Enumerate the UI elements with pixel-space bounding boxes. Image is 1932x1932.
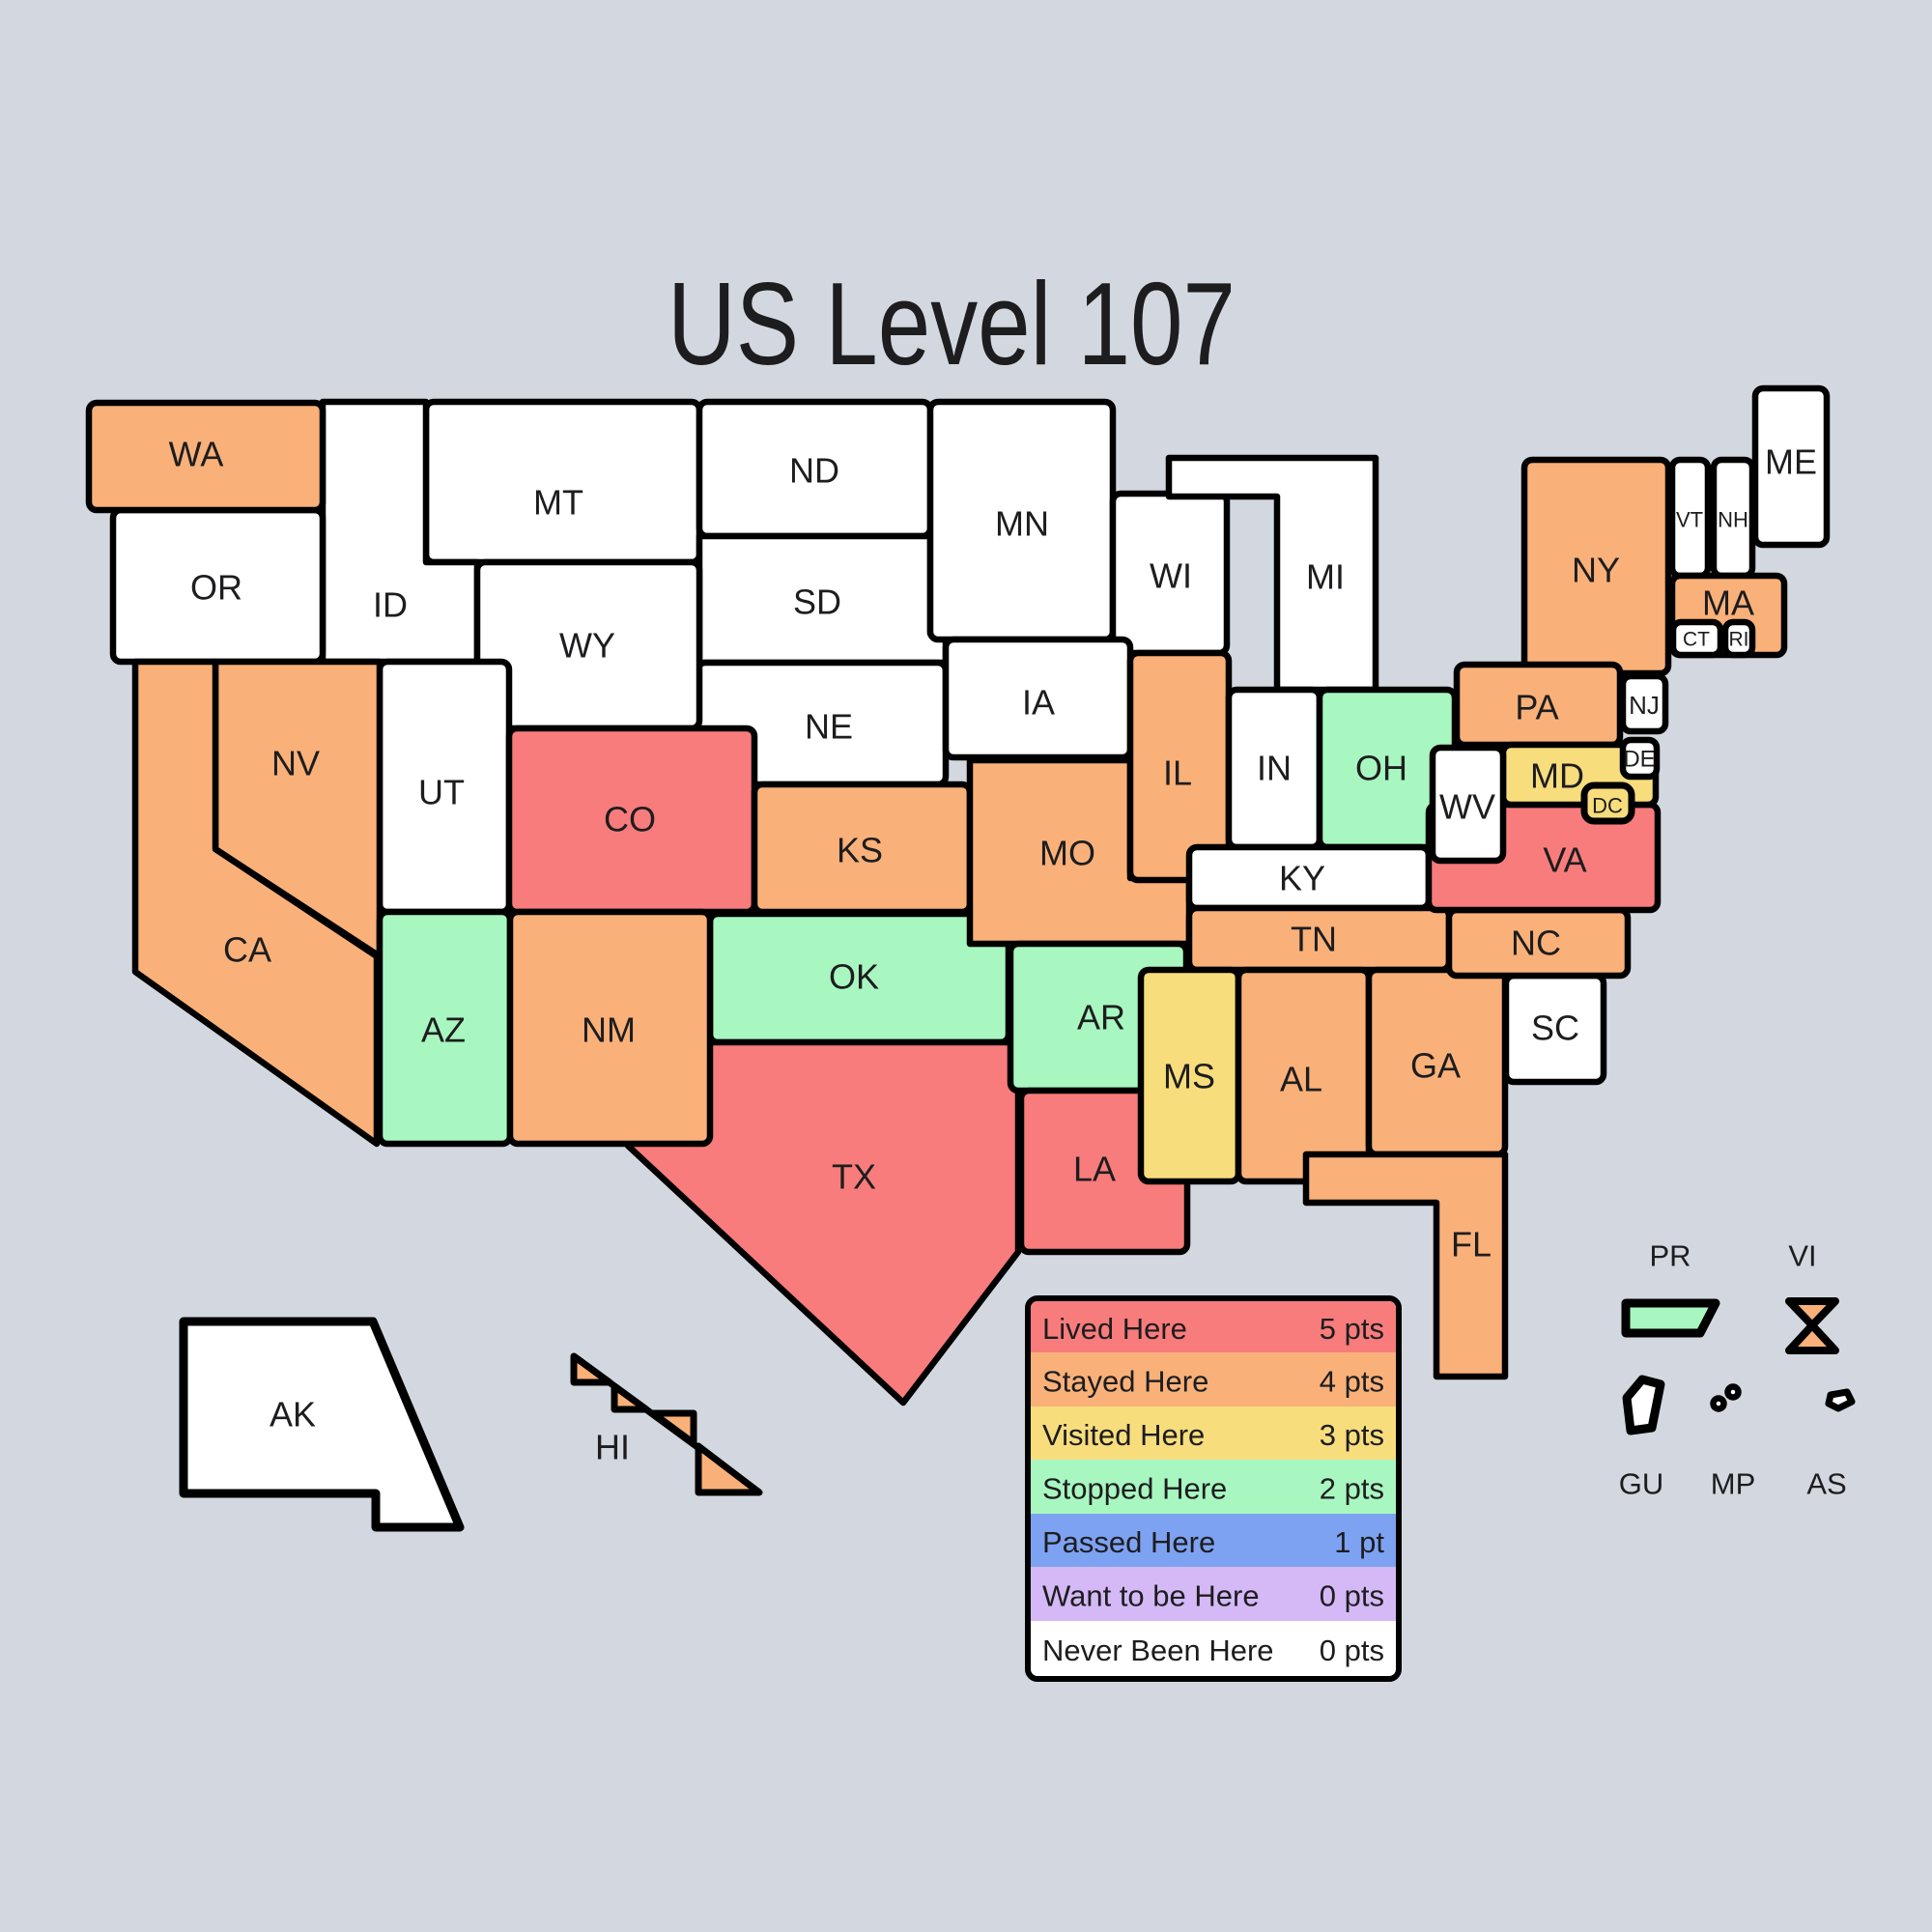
svg-text:LA: LA xyxy=(1073,1150,1116,1189)
svg-text:0 pts: 0 pts xyxy=(1320,1579,1384,1613)
svg-text:Want to be Here: Want to be Here xyxy=(1042,1579,1260,1613)
svg-text:Passed Here: Passed Here xyxy=(1042,1525,1215,1559)
svg-text:WA: WA xyxy=(169,435,224,474)
svg-text:Stayed Here: Stayed Here xyxy=(1042,1365,1208,1399)
svg-text:NH: NH xyxy=(1718,508,1748,532)
svg-text:CA: CA xyxy=(223,930,271,970)
svg-text:IN: IN xyxy=(1257,749,1292,788)
svg-text:Lived Here: Lived Here xyxy=(1042,1312,1187,1346)
svg-text:KY: KY xyxy=(1279,859,1325,898)
svg-text:NE: NE xyxy=(805,707,853,747)
svg-text:AS: AS xyxy=(1806,1467,1846,1501)
svg-text:CO: CO xyxy=(604,800,656,839)
svg-text:3 pts: 3 pts xyxy=(1320,1418,1384,1452)
svg-text:PR: PR xyxy=(1649,1239,1690,1273)
svg-text:GU: GU xyxy=(1619,1467,1664,1501)
svg-text:GA: GA xyxy=(1410,1046,1461,1086)
svg-text:HI: HI xyxy=(595,1428,630,1467)
svg-text:PA: PA xyxy=(1515,688,1558,727)
svg-text:MA: MA xyxy=(1702,583,1754,623)
svg-text:RI: RI xyxy=(1729,629,1749,651)
svg-text:ID: ID xyxy=(373,585,408,625)
svg-text:AK: AK xyxy=(270,1395,316,1435)
svg-text:TN: TN xyxy=(1291,920,1337,959)
svg-text:NY: NY xyxy=(1572,551,1620,590)
svg-text:WY: WY xyxy=(559,626,615,666)
svg-text:WV: WV xyxy=(1439,787,1495,827)
svg-text:MD: MD xyxy=(1530,756,1584,796)
svg-text:DC: DC xyxy=(1592,794,1623,818)
svg-text:2 pts: 2 pts xyxy=(1320,1472,1384,1506)
svg-text:AR: AR xyxy=(1077,998,1125,1037)
svg-text:DE: DE xyxy=(1623,747,1655,773)
svg-text:IL: IL xyxy=(1163,753,1192,793)
svg-text:NJ: NJ xyxy=(1629,691,1660,720)
svg-text:TX: TX xyxy=(832,1157,876,1197)
svg-text:5 pts: 5 pts xyxy=(1320,1312,1384,1346)
svg-text:US Level 107: US Level 107 xyxy=(668,258,1236,389)
svg-text:SD: SD xyxy=(793,582,841,622)
svg-text:VI: VI xyxy=(1788,1239,1816,1273)
svg-text:AL: AL xyxy=(1280,1060,1322,1099)
svg-text:0 pts: 0 pts xyxy=(1320,1634,1384,1667)
svg-text:MS: MS xyxy=(1163,1057,1215,1096)
svg-text:AZ: AZ xyxy=(421,1010,466,1050)
svg-text:OR: OR xyxy=(190,568,242,608)
svg-text:MI: MI xyxy=(1306,557,1345,597)
svg-text:VA: VA xyxy=(1543,840,1586,880)
svg-text:SC: SC xyxy=(1531,1009,1579,1048)
svg-text:WI: WI xyxy=(1150,556,1192,596)
svg-text:NM: NM xyxy=(582,1010,636,1050)
svg-text:Stopped Here: Stopped Here xyxy=(1042,1472,1227,1506)
svg-text:VT: VT xyxy=(1676,508,1703,532)
svg-text:MT: MT xyxy=(533,483,583,523)
svg-text:KS: KS xyxy=(837,831,883,870)
svg-text:Never Been Here: Never Been Here xyxy=(1042,1634,1274,1667)
svg-text:IA: IA xyxy=(1022,683,1055,723)
svg-text:ME: ME xyxy=(1765,442,1817,482)
svg-text:UT: UT xyxy=(418,773,465,812)
svg-text:MO: MO xyxy=(1039,834,1095,873)
svg-text:1 pt: 1 pt xyxy=(1334,1525,1384,1559)
svg-text:OH: OH xyxy=(1355,749,1407,788)
svg-text:NV: NV xyxy=(271,744,320,783)
svg-text:NC: NC xyxy=(1511,923,1561,963)
svg-text:4 pts: 4 pts xyxy=(1320,1365,1384,1399)
svg-text:FL: FL xyxy=(1451,1225,1492,1264)
svg-text:MP: MP xyxy=(1711,1467,1756,1501)
svg-text:Visited Here: Visited Here xyxy=(1042,1418,1205,1452)
svg-text:MN: MN xyxy=(995,504,1049,544)
svg-text:CT: CT xyxy=(1683,629,1710,651)
svg-text:ND: ND xyxy=(789,451,839,491)
svg-text:OK: OK xyxy=(829,957,879,997)
